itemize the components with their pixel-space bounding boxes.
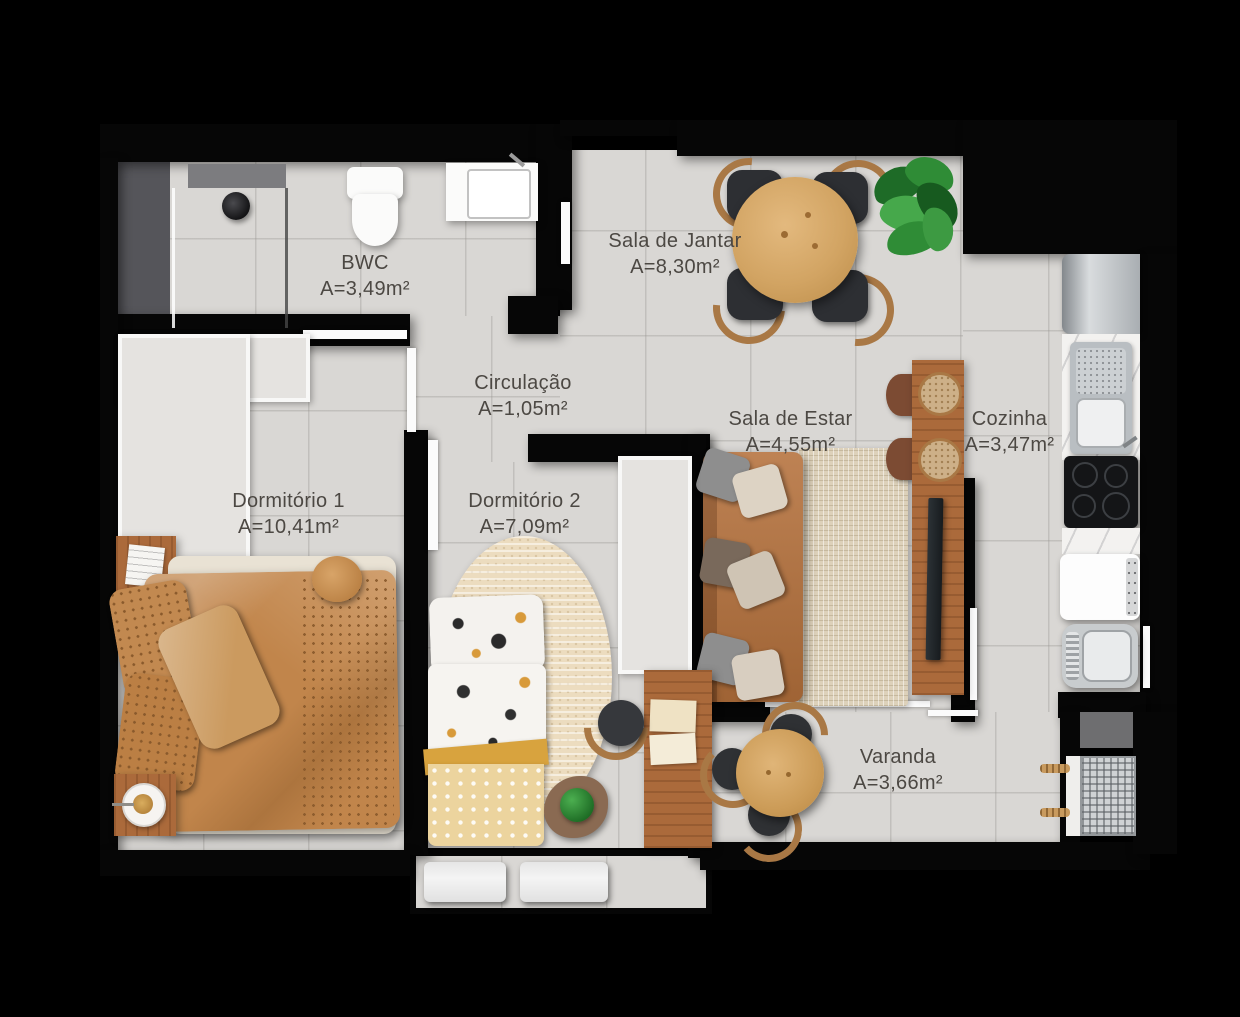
- dorm2-door-leaf: [428, 440, 438, 550]
- fridge: [1062, 254, 1140, 334]
- cooktop-burner: [1104, 464, 1128, 488]
- room-area: A=10,41m²: [206, 514, 371, 540]
- desk-chair: [598, 700, 644, 746]
- sofa-pillow: [730, 648, 785, 702]
- shower-bench: [188, 164, 286, 188]
- wall-dorm1-dorm2: [404, 430, 428, 855]
- living-rug: [798, 448, 908, 706]
- potted-plant: [560, 788, 594, 822]
- room-label-cozinha: Cozinha A=3,47m²: [952, 406, 1067, 458]
- room-area: A=3,47m²: [952, 432, 1067, 458]
- shower-drain-icon: [222, 192, 250, 220]
- room-name: Sala de Estar: [708, 406, 873, 432]
- bathroom-sink: [467, 169, 531, 219]
- room-area: A=4,55m²: [708, 432, 873, 458]
- wall-bwc-east-stub: [508, 296, 558, 334]
- duvet-knot: [312, 556, 362, 602]
- wall-top-bwc: [100, 124, 544, 162]
- cooktop-burner: [1072, 462, 1098, 488]
- desk-papers: [649, 699, 696, 733]
- room-name: Sala de Jantar: [585, 228, 765, 254]
- kitchen-sink-drainboard: [1076, 348, 1126, 394]
- floor-plan: BWC A=3,49m² Sala de Jantar A=8,30m² Cir…: [0, 0, 1240, 1017]
- kitchen-sink-basin: [1076, 398, 1126, 448]
- room-area: A=8,30m²: [585, 254, 765, 280]
- room-label-varanda: Varanda A=3,66m²: [818, 744, 978, 796]
- room-area: A=3,66m²: [818, 770, 978, 796]
- wall-left: [100, 158, 118, 858]
- toilet-bowl: [352, 194, 398, 246]
- room-label-dormitorio1: Dormitório 1 A=10,41m²: [206, 488, 371, 540]
- grill-skewer-handle: [1040, 764, 1070, 773]
- dining-table-knot-1: [781, 231, 788, 238]
- dorm1-door-leaf: [407, 348, 416, 432]
- wall-top-dining: [677, 120, 968, 156]
- grill: [1080, 756, 1136, 836]
- room-name: Dormitório 2: [442, 488, 607, 514]
- room-area: A=1,05m²: [448, 396, 598, 422]
- laundry-tank-basin: [1082, 630, 1132, 682]
- balcony-table-knot: [766, 770, 771, 775]
- room-name: Dormitório 1: [206, 488, 371, 514]
- grill-skewer-handle: [1040, 808, 1070, 817]
- room-label-sala-jantar: Sala de Jantar A=8,30m²: [585, 228, 765, 280]
- laundry-shaft: [1080, 712, 1133, 748]
- wall-top-hall: [560, 120, 690, 136]
- cooktop-burner: [1102, 492, 1130, 520]
- room-name: Circulação: [448, 370, 598, 396]
- room-label-dormitorio2: Dormitório 2 A=7,09m²: [442, 488, 607, 540]
- room-name: Cozinha: [952, 406, 1067, 432]
- tray-spoon-icon: [112, 803, 134, 806]
- ac-condenser: [520, 862, 608, 902]
- desk-papers: [649, 733, 697, 765]
- tv: [926, 498, 944, 660]
- duct-shaft: [114, 162, 170, 314]
- single-bed-pillow: [429, 594, 546, 674]
- room-name: BWC: [285, 250, 445, 276]
- coffee-cup: [133, 794, 153, 814]
- room-label-bwc: BWC A=3,49m²: [285, 250, 445, 302]
- balcony-table: [736, 729, 824, 817]
- room-name: Varanda: [818, 744, 978, 770]
- estar-window: [970, 608, 977, 700]
- dining-wall-window: [561, 202, 570, 264]
- wall-grill-right: [1133, 712, 1177, 854]
- dining-table-knot-3: [812, 243, 818, 249]
- balcony-table-knot: [786, 772, 791, 777]
- kitchen-counter-marble-2: [1062, 528, 1140, 554]
- washing-machine-panel: [1126, 558, 1138, 616]
- varanda-glass-door-2: [928, 710, 978, 716]
- bwc-sliding-door: [303, 330, 407, 339]
- wardrobe-dorm2: [618, 456, 692, 674]
- wall-corner-ne: [963, 120, 1177, 254]
- room-area: A=7,09m²: [442, 514, 607, 540]
- room-label-sala-estar: Sala de Estar A=4,55m²: [708, 406, 873, 458]
- room-area: A=3,49m²: [285, 276, 445, 302]
- cooktop-burner: [1072, 494, 1096, 518]
- wall-dorm1-bottom: [100, 850, 410, 876]
- dining-table-knot-2: [805, 212, 811, 218]
- room-label-circulacao: Circulação A=1,05m²: [448, 370, 598, 422]
- double-bed-duvet-dotted: [300, 576, 394, 826]
- laundry-tank-ribs: [1066, 632, 1079, 680]
- ac-condenser: [424, 862, 506, 902]
- single-bed-blanket: [428, 764, 544, 846]
- kitchen-window: [1143, 626, 1150, 688]
